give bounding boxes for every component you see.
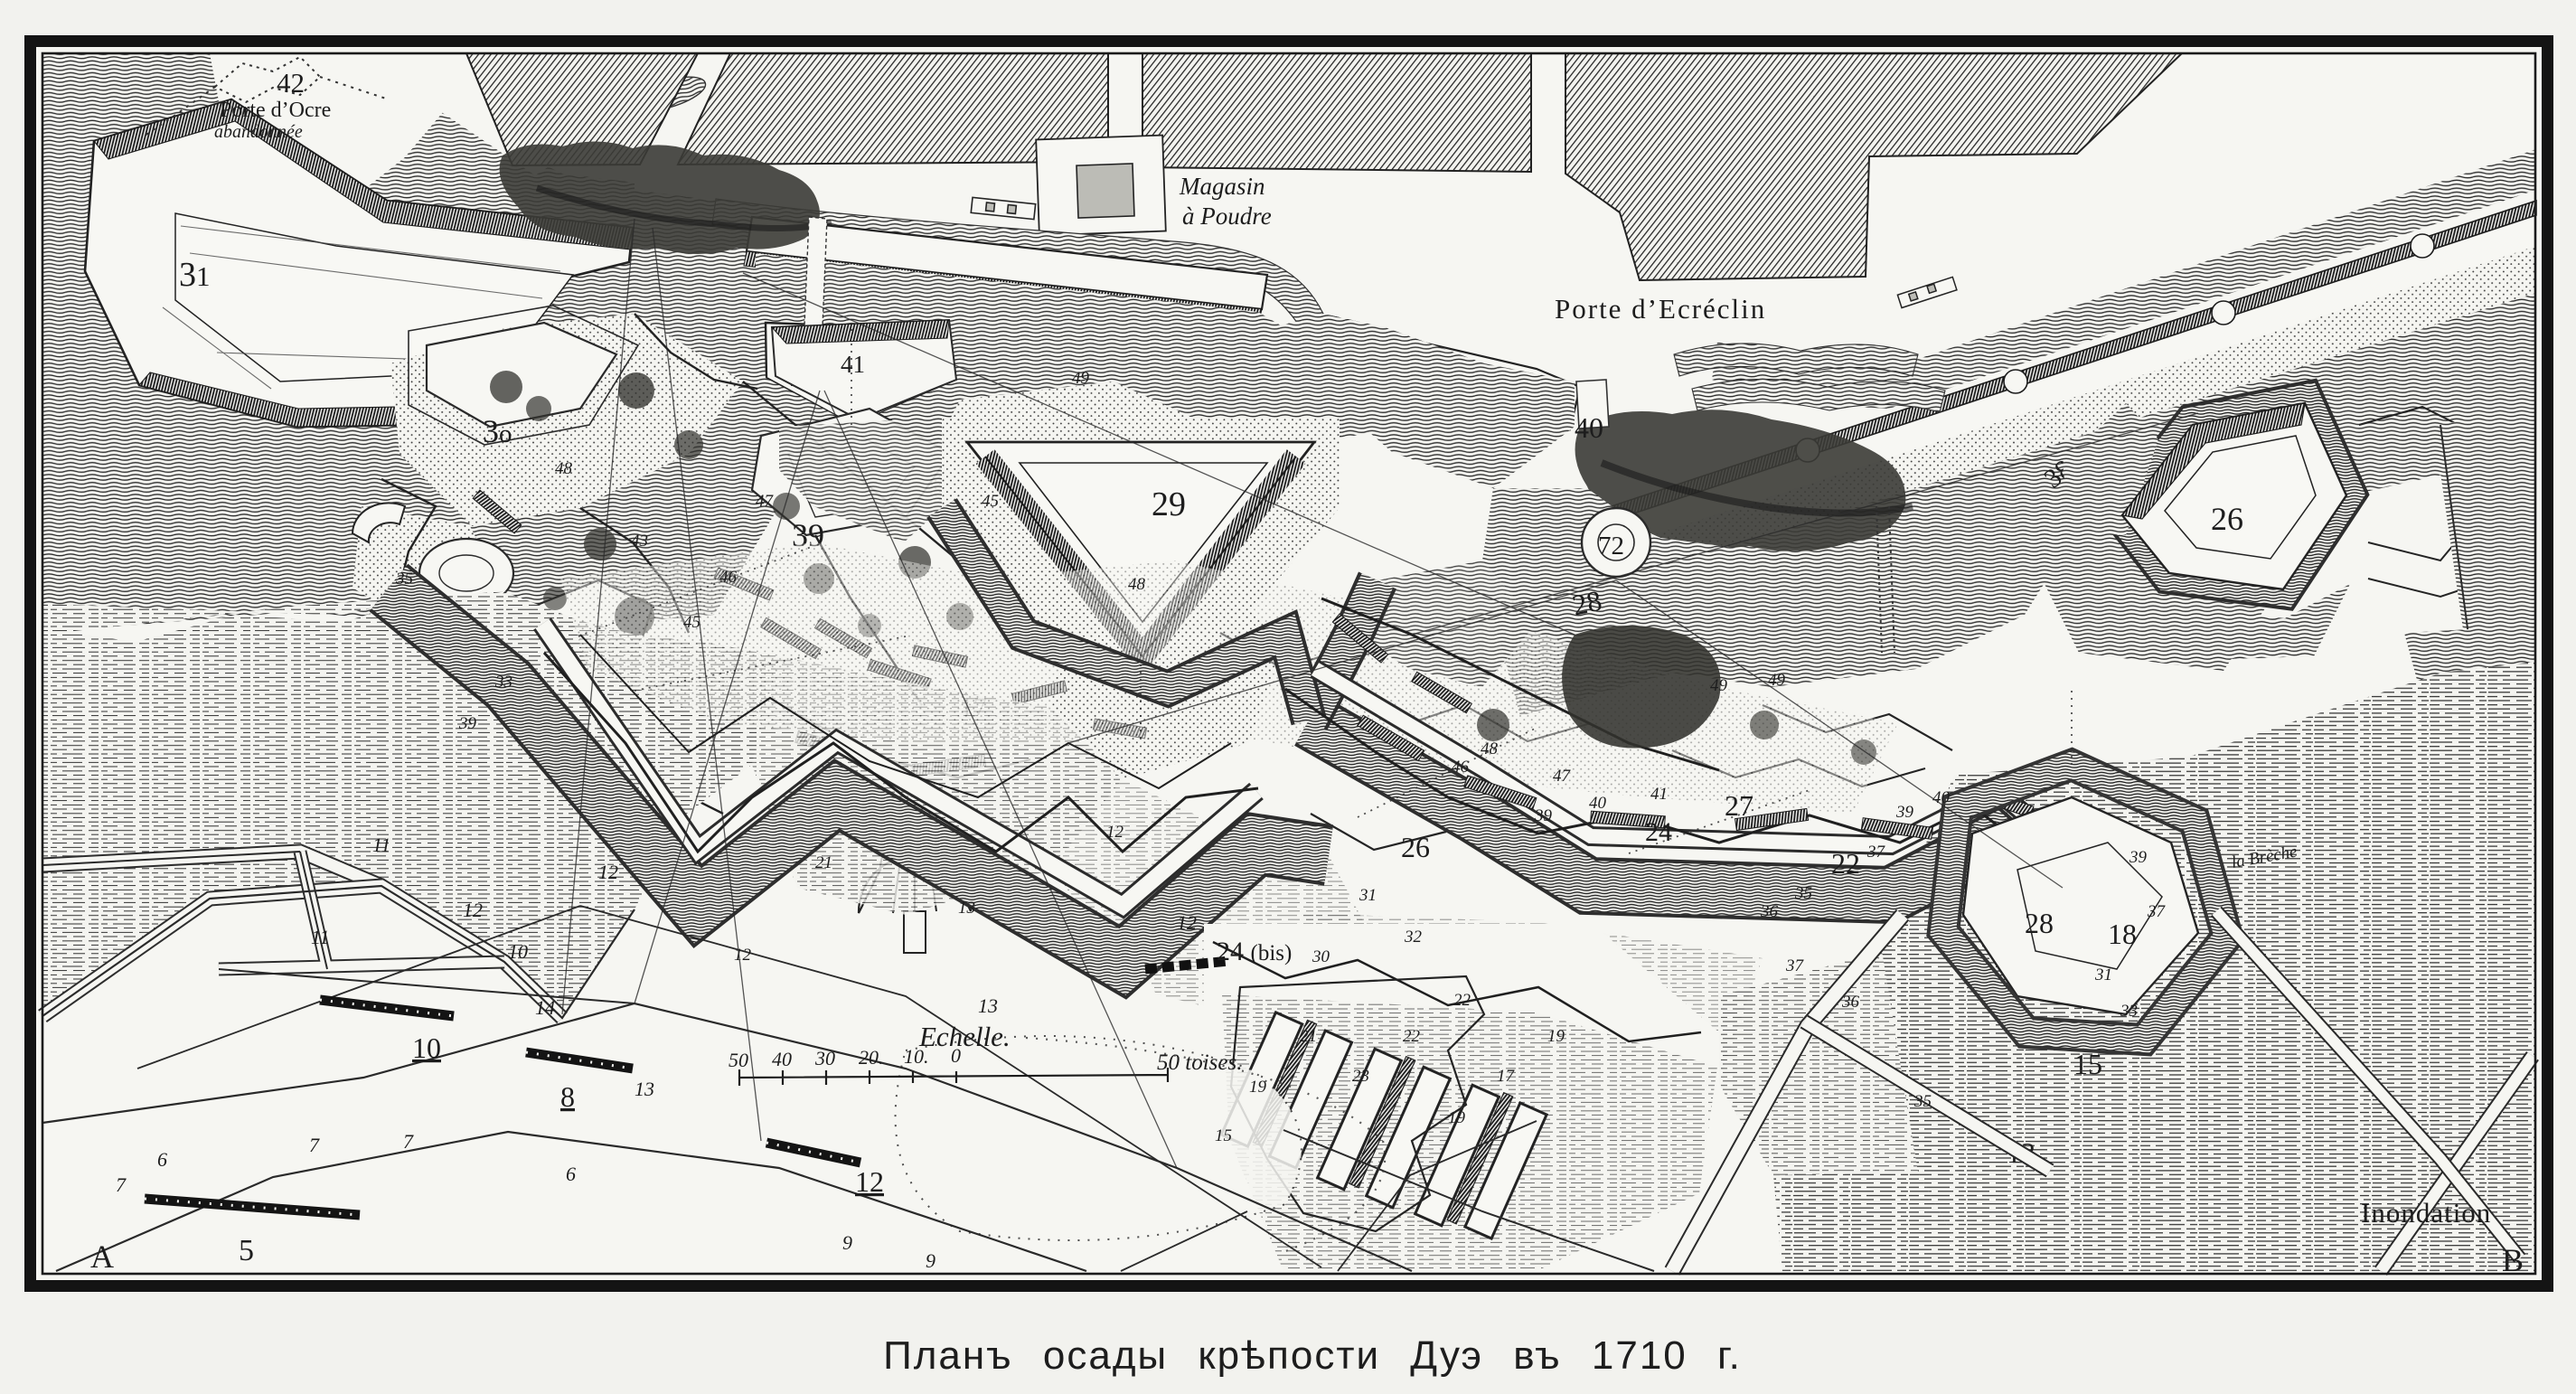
svg-text:6: 6: [157, 1148, 167, 1171]
svg-text:37: 37: [1785, 956, 1805, 975]
svg-text:0: 0: [951, 1044, 961, 1067]
svg-text:37: 37: [2147, 902, 2167, 921]
svg-text:24: 24: [1645, 817, 1672, 847]
svg-text:22: 22: [1831, 847, 1860, 880]
svg-text:35: 35: [1913, 1092, 1932, 1111]
svg-text:15: 15: [1215, 1126, 1232, 1145]
svg-text:21: 21: [815, 853, 832, 872]
svg-text:15: 15: [2073, 1048, 2102, 1080]
svg-text:10: 10: [412, 1031, 441, 1064]
svg-text:Porte d’Ocre: Porte d’Ocre: [220, 99, 331, 122]
svg-text:12: 12: [1177, 911, 1197, 934]
svg-text:13: 13: [978, 994, 998, 1017]
svg-text:29: 29: [1152, 485, 1186, 523]
svg-text:41: 41: [1650, 785, 1668, 804]
svg-text:23: 23: [1352, 1067, 1369, 1086]
svg-text:10.: 10.: [904, 1045, 929, 1068]
svg-text:45: 45: [982, 492, 999, 511]
svg-text:35: 35: [1794, 884, 1812, 903]
svg-text:33: 33: [494, 673, 512, 692]
svg-text:6: 6: [566, 1163, 576, 1185]
svg-text:12: 12: [463, 899, 483, 921]
svg-text:10: 10: [508, 940, 528, 963]
svg-text:43: 43: [631, 532, 648, 551]
svg-text:12: 12: [1106, 823, 1124, 842]
svg-text:39: 39: [2129, 848, 2148, 867]
svg-text:72: 72: [1598, 532, 1624, 560]
svg-text:Echelle.: Echelle.: [918, 1021, 1011, 1052]
svg-text:22: 22: [1403, 1027, 1421, 1046]
svg-text:48: 48: [1128, 575, 1146, 594]
svg-text:12: 12: [734, 946, 752, 965]
svg-text:39: 39: [1534, 806, 1553, 825]
svg-text:19: 19: [1249, 1078, 1267, 1097]
svg-text:47: 47: [1553, 767, 1572, 786]
svg-text:30: 30: [814, 1047, 835, 1069]
svg-text:37: 37: [1866, 843, 1886, 862]
svg-text:20.: 20.: [859, 1046, 884, 1069]
svg-text:35: 35: [395, 570, 413, 589]
svg-text:27: 27: [1725, 789, 1753, 822]
svg-text:17: 17: [1497, 1067, 1516, 1086]
svg-text:36: 36: [1760, 902, 1779, 921]
svg-text:A: A: [90, 1239, 114, 1275]
svg-text:18: 18: [2108, 918, 2137, 950]
svg-text:48: 48: [555, 459, 573, 478]
svg-text:36: 36: [1841, 993, 1860, 1012]
svg-text:50: 50: [729, 1049, 748, 1071]
svg-text:40: 40: [1589, 794, 1607, 813]
svg-text:45: 45: [683, 613, 700, 632]
svg-text:33: 33: [2120, 1002, 2138, 1021]
svg-text:5: 5: [239, 1234, 254, 1267]
svg-text:42: 42: [277, 67, 305, 99]
svg-text:40: 40: [1575, 411, 1603, 444]
svg-text:47: 47: [756, 492, 775, 511]
svg-text:Magasin: Magasin: [1179, 173, 1265, 200]
svg-text:14: 14: [535, 996, 555, 1019]
svg-text:à Poudre: à Poudre: [1182, 203, 1272, 230]
svg-text:31: 31: [2094, 965, 2112, 984]
svg-text:Планъ осады крѣпости Дуэ въ 17: Планъ осады крѣпости Дуэ въ 1710 г.: [883, 1333, 1742, 1378]
svg-text:49: 49: [1072, 369, 1090, 388]
svg-text:Porte d’Ecréclin: Porte d’Ecréclin: [1555, 293, 1766, 325]
svg-text:9: 9: [926, 1249, 935, 1272]
svg-text:19: 19: [1547, 1027, 1565, 1046]
svg-text:30: 30: [1312, 947, 1330, 966]
svg-text:11: 11: [372, 834, 390, 856]
svg-text:22: 22: [1453, 991, 1471, 1010]
svg-text:41: 41: [841, 351, 865, 378]
svg-text:8: 8: [560, 1080, 575, 1113]
svg-text:31: 31: [1359, 886, 1377, 905]
svg-text:Inondation: Inondation: [2361, 1197, 2491, 1229]
svg-text:abandonnée: abandonnée: [214, 122, 303, 142]
svg-text:13: 13: [635, 1078, 654, 1100]
svg-text:39: 39: [458, 714, 477, 733]
svg-text:28: 28: [2025, 907, 2054, 939]
svg-text:7: 7: [403, 1130, 414, 1153]
svg-text:12: 12: [855, 1165, 884, 1198]
svg-text:40: 40: [772, 1048, 792, 1070]
svg-text:21: 21: [1300, 1027, 1317, 1046]
svg-text:48: 48: [1481, 739, 1499, 758]
svg-text:50 toises.: 50 toises.: [1157, 1050, 1242, 1075]
svg-text:13: 13: [958, 899, 975, 918]
svg-text:32: 32: [1404, 928, 1423, 947]
svg-text:31: 31: [179, 256, 211, 294]
svg-text:26: 26: [1401, 831, 1430, 863]
svg-text:12: 12: [598, 861, 618, 883]
svg-text:24 (bis): 24 (bis): [1217, 937, 1292, 966]
svg-text:46: 46: [1452, 758, 1470, 777]
svg-text:49: 49: [1710, 676, 1728, 695]
svg-text:39: 39: [1895, 803, 1914, 822]
svg-text:7: 7: [309, 1134, 320, 1156]
svg-text:19: 19: [1448, 1108, 1466, 1127]
svg-text:7: 7: [116, 1173, 127, 1196]
svg-text:26: 26: [2211, 501, 2243, 537]
svg-text:11: 11: [311, 926, 329, 948]
svg-text:9: 9: [842, 1231, 852, 1254]
